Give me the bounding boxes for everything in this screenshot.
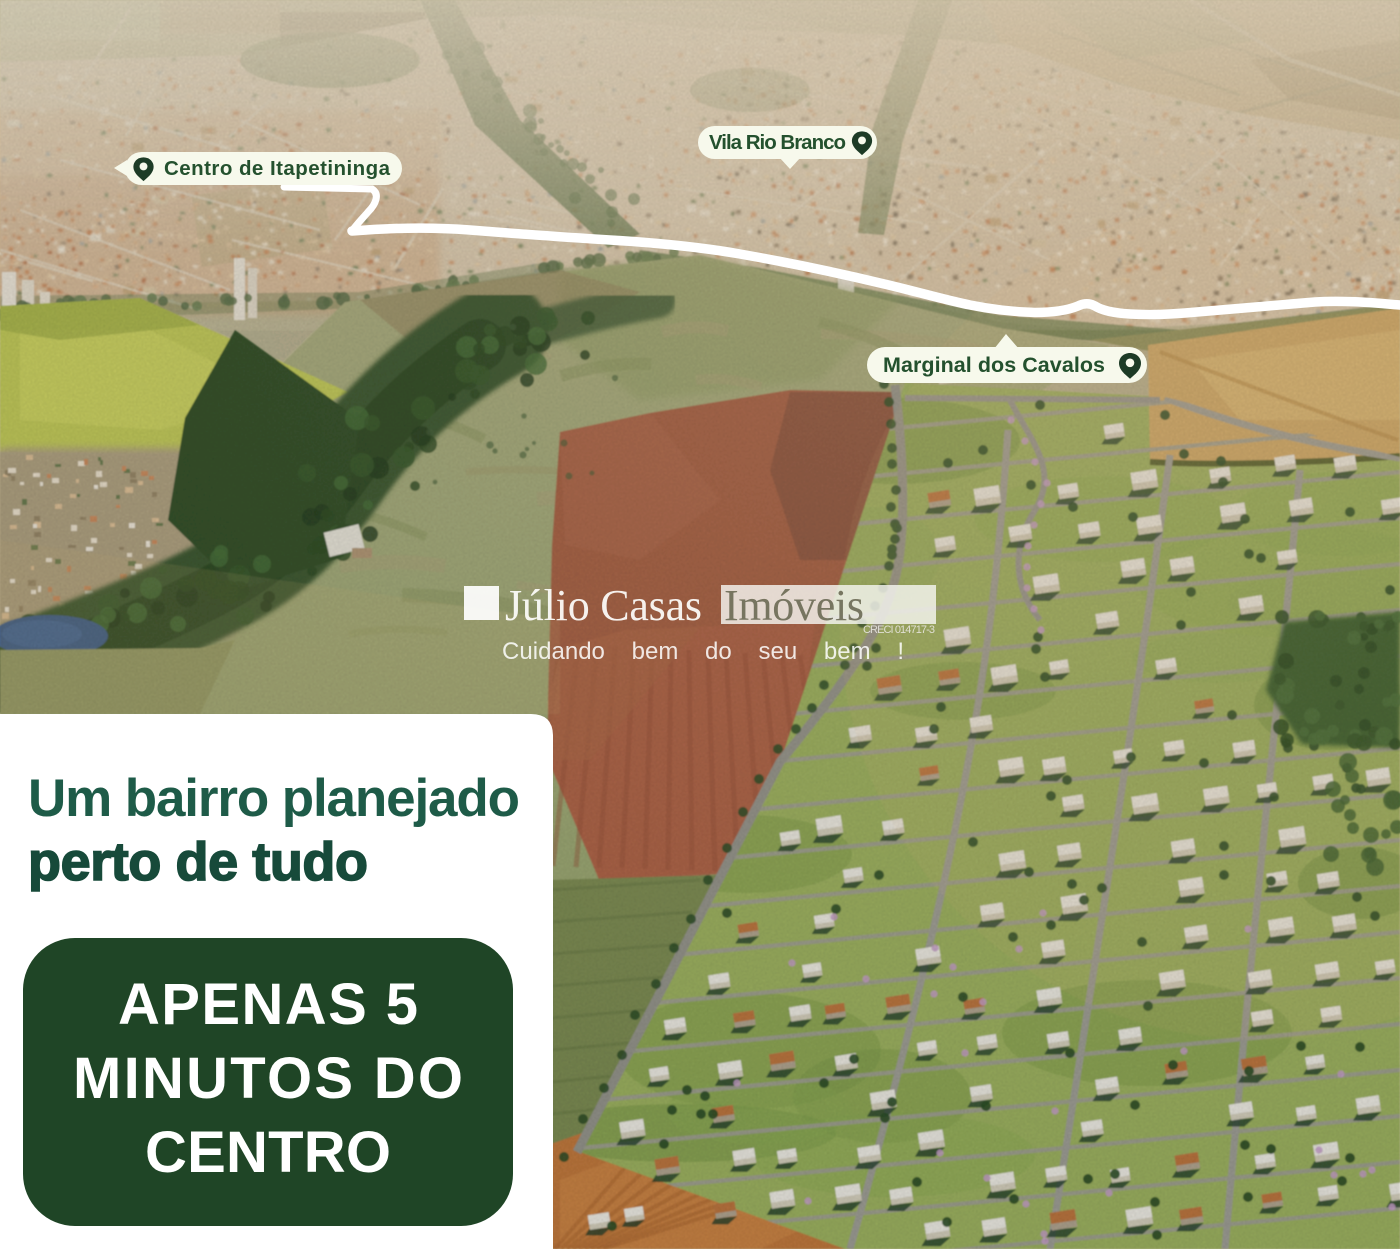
- svg-text:Centro de Itapetininga: Centro de Itapetininga: [164, 157, 391, 180]
- svg-text:Um bairro planejado: Um bairro planejado: [28, 769, 520, 828]
- svg-text:Júlio Casas: Júlio Casas: [505, 581, 702, 630]
- svg-text:CRECI 014717-3: CRECI 014717-3: [863, 624, 935, 636]
- svg-text:Vila Rio Branco: Vila Rio Branco: [709, 131, 846, 154]
- svg-text:APENAS 5: APENAS 5: [118, 972, 418, 1037]
- svg-text:CENTRO: CENTRO: [145, 1120, 391, 1185]
- svg-text:MINUTOS DO: MINUTOS DO: [73, 1046, 463, 1111]
- svg-text:perto de tudo: perto de tudo: [28, 832, 368, 892]
- svg-text:Cuidando bem do seu bem !: Cuidando bem do seu bem !: [502, 638, 912, 665]
- svg-text:Imóveis: Imóveis: [724, 581, 864, 630]
- svg-text:Marginal dos Cavalos: Marginal dos Cavalos: [883, 353, 1105, 377]
